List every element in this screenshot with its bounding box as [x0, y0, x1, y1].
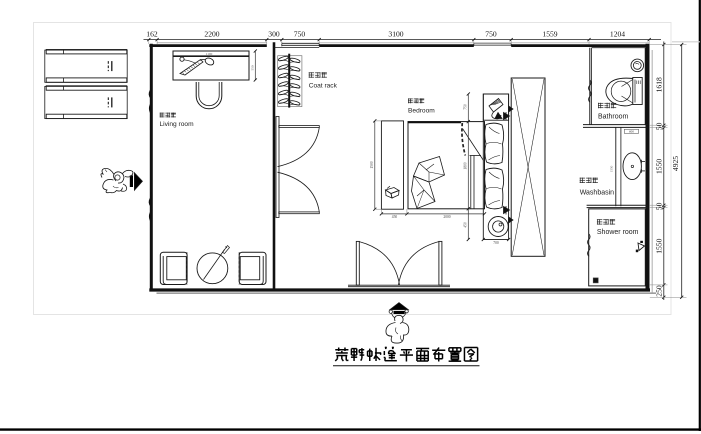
svg-text:4925: 4925 — [671, 156, 680, 171]
svg-text:Washbasin: Washbasin — [580, 189, 614, 196]
svg-text:550: 550 — [251, 65, 255, 70]
svg-text:162: 162 — [146, 30, 158, 39]
svg-text:1100: 1100 — [206, 52, 213, 56]
svg-text:450: 450 — [392, 215, 398, 219]
svg-text:1550: 1550 — [654, 159, 663, 174]
svg-text:50: 50 — [654, 122, 663, 130]
svg-text:Living room: Living room — [160, 121, 195, 128]
svg-text:50: 50 — [654, 202, 663, 210]
svg-text:450: 450 — [463, 222, 467, 228]
svg-text:600: 600 — [629, 130, 634, 134]
svg-text:1204: 1204 — [610, 30, 625, 39]
svg-text:Bathroom: Bathroom — [598, 113, 629, 120]
svg-text:2000: 2000 — [443, 215, 450, 219]
svg-text:1500: 1500 — [370, 161, 374, 168]
svg-text:1550: 1550 — [609, 165, 613, 172]
svg-text:700: 700 — [493, 241, 499, 245]
svg-text:1618: 1618 — [654, 77, 663, 92]
svg-text:750: 750 — [294, 30, 306, 39]
svg-text:300: 300 — [268, 30, 280, 39]
svg-text:3100: 3100 — [388, 30, 403, 39]
svg-text:1559: 1559 — [542, 30, 557, 39]
svg-text:1550: 1550 — [654, 238, 663, 253]
svg-text:750: 750 — [463, 104, 467, 110]
svg-text:1800: 1800 — [463, 162, 467, 169]
svg-text:Bedroom: Bedroom — [408, 107, 435, 114]
svg-text:750: 750 — [485, 30, 497, 39]
svg-text:Shower room: Shower room — [597, 229, 639, 236]
svg-text:250: 250 — [654, 285, 663, 297]
svg-text:2200: 2200 — [204, 30, 219, 39]
svg-text:Coat rack: Coat rack — [309, 82, 338, 89]
